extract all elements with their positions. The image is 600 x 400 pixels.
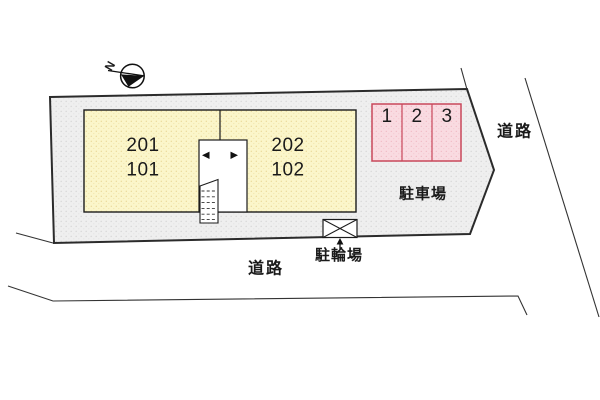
site-plan-svg: 201 101 202 102 1 2 3 駐車場 駐輪場 道路 道路 N: [0, 0, 600, 400]
unit-202-label: 202: [271, 135, 304, 156]
right-road-inner-edge-extension: [461, 68, 467, 90]
parking-stall-2-label: 2: [411, 106, 422, 127]
unit-201-label: 201: [126, 135, 159, 156]
bicycle-parking-label: 駐輪場: [315, 246, 363, 264]
site-plan-canvas: 201 101 202 102 1 2 3 駐車場 駐輪場 道路 道路 N: [0, 0, 600, 400]
staircase-outline: [200, 180, 218, 224]
unit-102-label: 102: [271, 160, 304, 181]
bicycle-parking-box: [323, 220, 357, 238]
road-label-bottom: 道路: [248, 259, 284, 278]
parking-stall-3-label: 3: [441, 106, 452, 127]
parking-lot-label: 駐車場: [399, 185, 447, 203]
parking-stall-1-label: 1: [381, 106, 392, 127]
road-label-right: 道路: [497, 122, 533, 141]
unit-101-label: 101: [126, 160, 159, 181]
bottom-road-upper-edge-left: [16, 233, 53, 243]
bottom-road-lower-edge: [8, 286, 527, 315]
right-road-outer-edge: [525, 78, 599, 317]
north-arrow-icon: N: [102, 59, 144, 88]
